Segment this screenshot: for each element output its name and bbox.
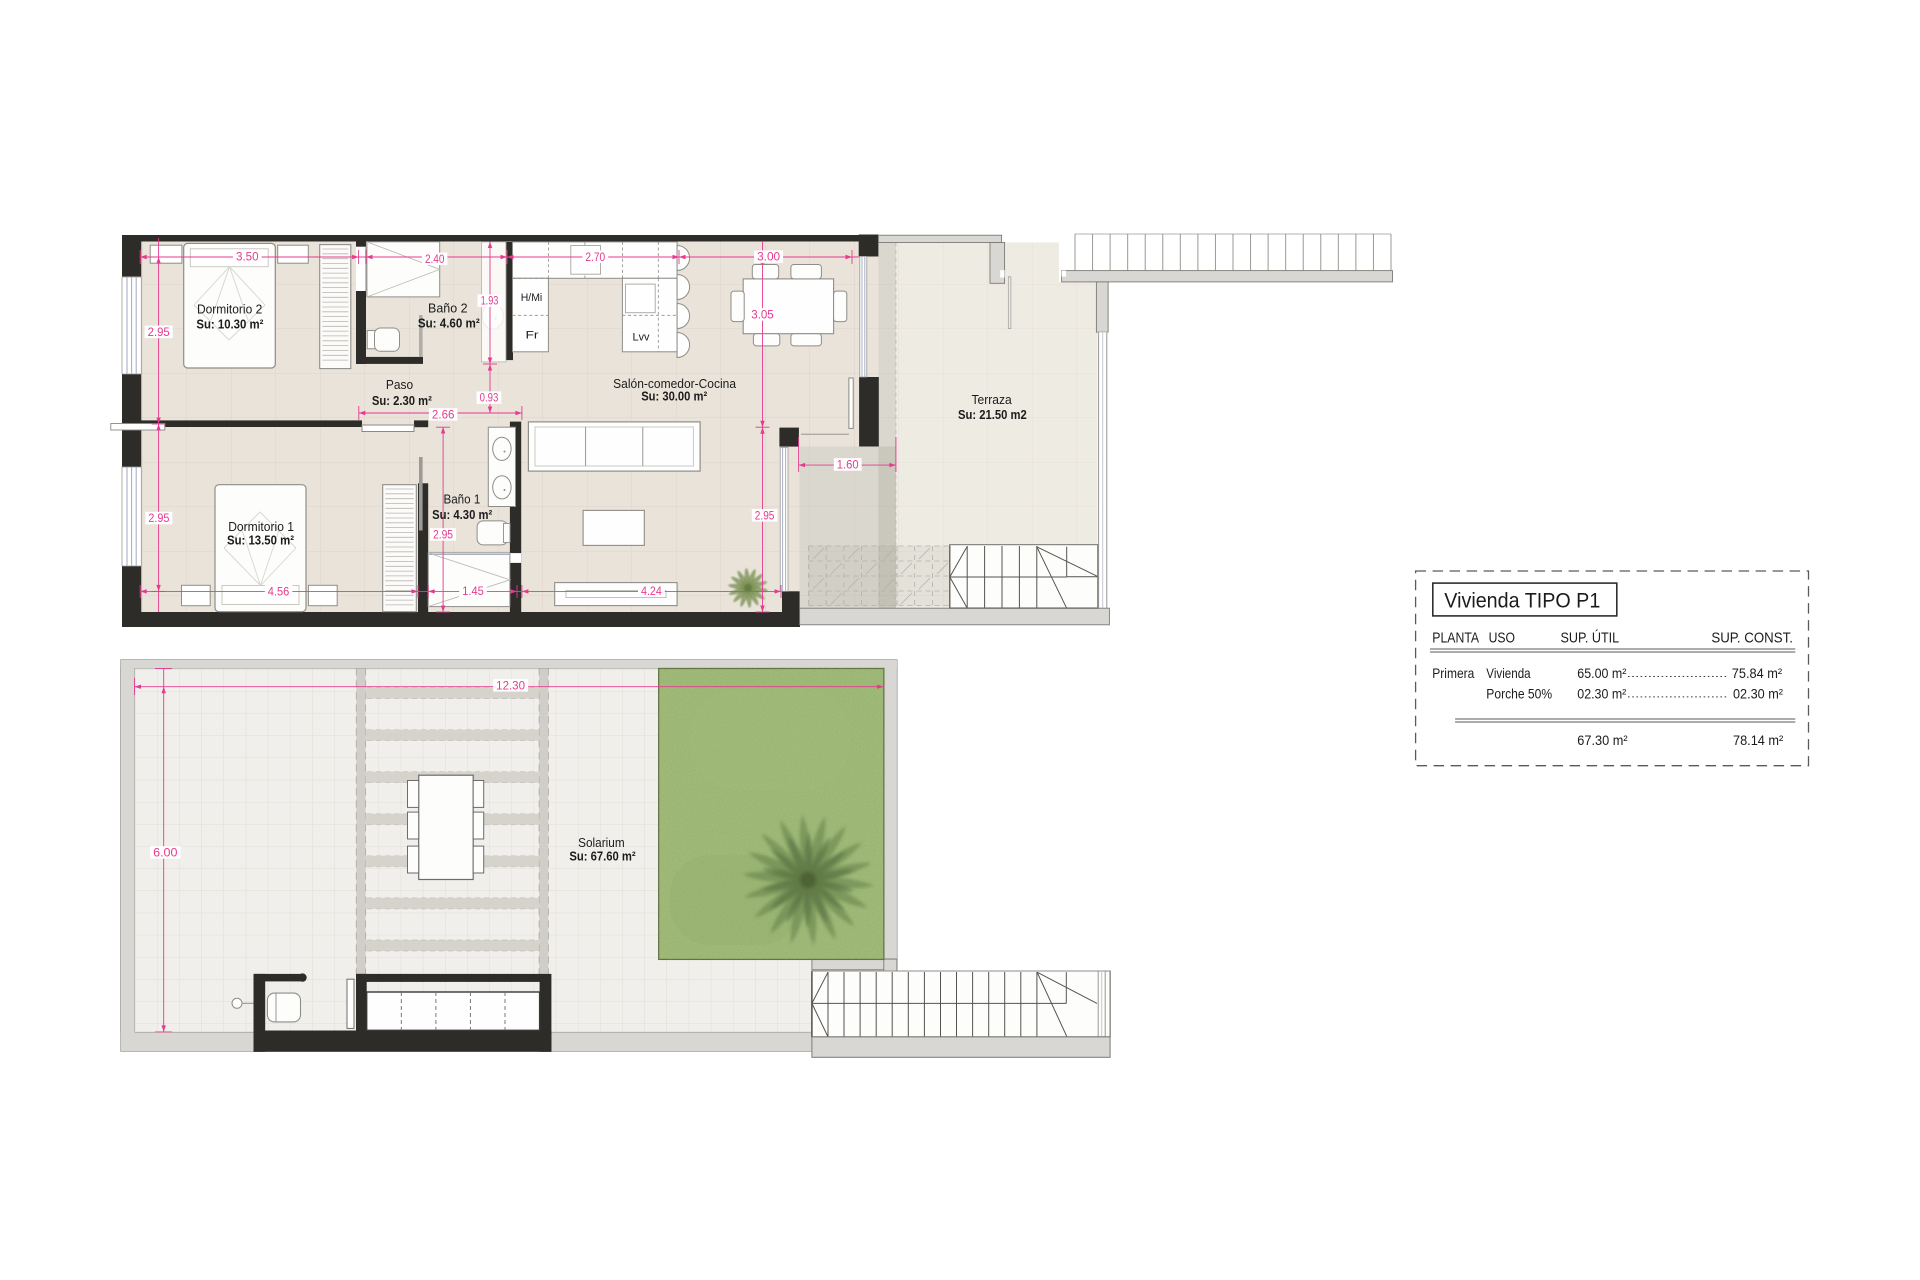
svg-text:4.56: 4.56 xyxy=(268,586,290,598)
svg-text:Su: 13.50 m²: Su: 13.50 m² xyxy=(227,532,295,547)
svg-text:SUP. CONST.: SUP. CONST. xyxy=(1711,629,1793,646)
svg-text:Dormitorio 2: Dormitorio 2 xyxy=(197,302,262,317)
svg-text:Su: 21.50 m2: Su: 21.50 m2 xyxy=(958,407,1027,422)
svg-text:02.30 m²: 02.30 m² xyxy=(1733,685,1783,701)
svg-text:SUP. ÚTIL: SUP. ÚTIL xyxy=(1561,629,1620,646)
svg-text:1.45: 1.45 xyxy=(462,586,484,598)
svg-text:Primera: Primera xyxy=(1432,665,1474,681)
svg-text:Porche 50%: Porche 50% xyxy=(1486,685,1552,701)
svg-text:6.00: 6.00 xyxy=(153,848,177,860)
svg-text:2.95: 2.95 xyxy=(148,327,170,339)
svg-text:1.93: 1.93 xyxy=(481,296,499,308)
svg-text:H/Mi: H/Mi xyxy=(521,292,543,304)
svg-text:78.14 m²: 78.14 m² xyxy=(1733,732,1784,748)
svg-text:3.50: 3.50 xyxy=(236,252,259,264)
svg-text:Su: 67.60 m²: Su: 67.60 m² xyxy=(569,848,636,863)
svg-text:2.95: 2.95 xyxy=(148,513,169,525)
svg-text:4.24: 4.24 xyxy=(641,586,662,598)
svg-text:0.93: 0.93 xyxy=(480,393,499,405)
svg-text:USO: USO xyxy=(1489,629,1515,646)
svg-text:67.30 m²: 67.30 m² xyxy=(1577,732,1628,748)
svg-text:2.95: 2.95 xyxy=(433,530,453,542)
svg-text:PLANTA: PLANTA xyxy=(1432,629,1479,646)
svg-text:12.30: 12.30 xyxy=(496,681,525,693)
svg-text:2.40: 2.40 xyxy=(425,254,445,266)
svg-text:Vivienda: Vivienda xyxy=(1486,665,1530,681)
svg-text:3.00: 3.00 xyxy=(757,252,780,264)
svg-text:2.66: 2.66 xyxy=(432,410,455,422)
svg-text:Vivienda TIPO P1: Vivienda TIPO P1 xyxy=(1444,590,1600,613)
svg-text:2.95: 2.95 xyxy=(755,511,775,523)
svg-text:3.05: 3.05 xyxy=(751,310,773,322)
svg-text:75.84 m²: 75.84 m² xyxy=(1732,665,1783,681)
svg-text:Su: 4.30 m²: Su: 4.30 m² xyxy=(432,507,493,522)
svg-text:65.00 m²: 65.00 m² xyxy=(1577,665,1626,681)
svg-text:Terraza: Terraza xyxy=(971,392,1012,407)
svg-text:Su: 30.00 m²: Su: 30.00 m² xyxy=(641,388,708,403)
svg-text:Su: 4.60 m²: Su: 4.60 m² xyxy=(418,315,480,330)
svg-text:Su: 10.30 m²: Su: 10.30 m² xyxy=(196,317,264,332)
svg-text:02.30 m²: 02.30 m² xyxy=(1577,685,1626,701)
svg-text:Fr: Fr xyxy=(526,330,539,342)
svg-text:1.60: 1.60 xyxy=(837,460,859,472)
svg-text:2.70: 2.70 xyxy=(585,252,605,264)
svg-text:Baño 2: Baño 2 xyxy=(428,301,468,316)
svg-text:Paso: Paso xyxy=(386,377,413,392)
svg-text:Baño 1: Baño 1 xyxy=(443,491,480,506)
svg-text:Su: 2.30 m²: Su: 2.30 m² xyxy=(372,393,433,408)
svg-text:Lvv: Lvv xyxy=(633,331,650,343)
